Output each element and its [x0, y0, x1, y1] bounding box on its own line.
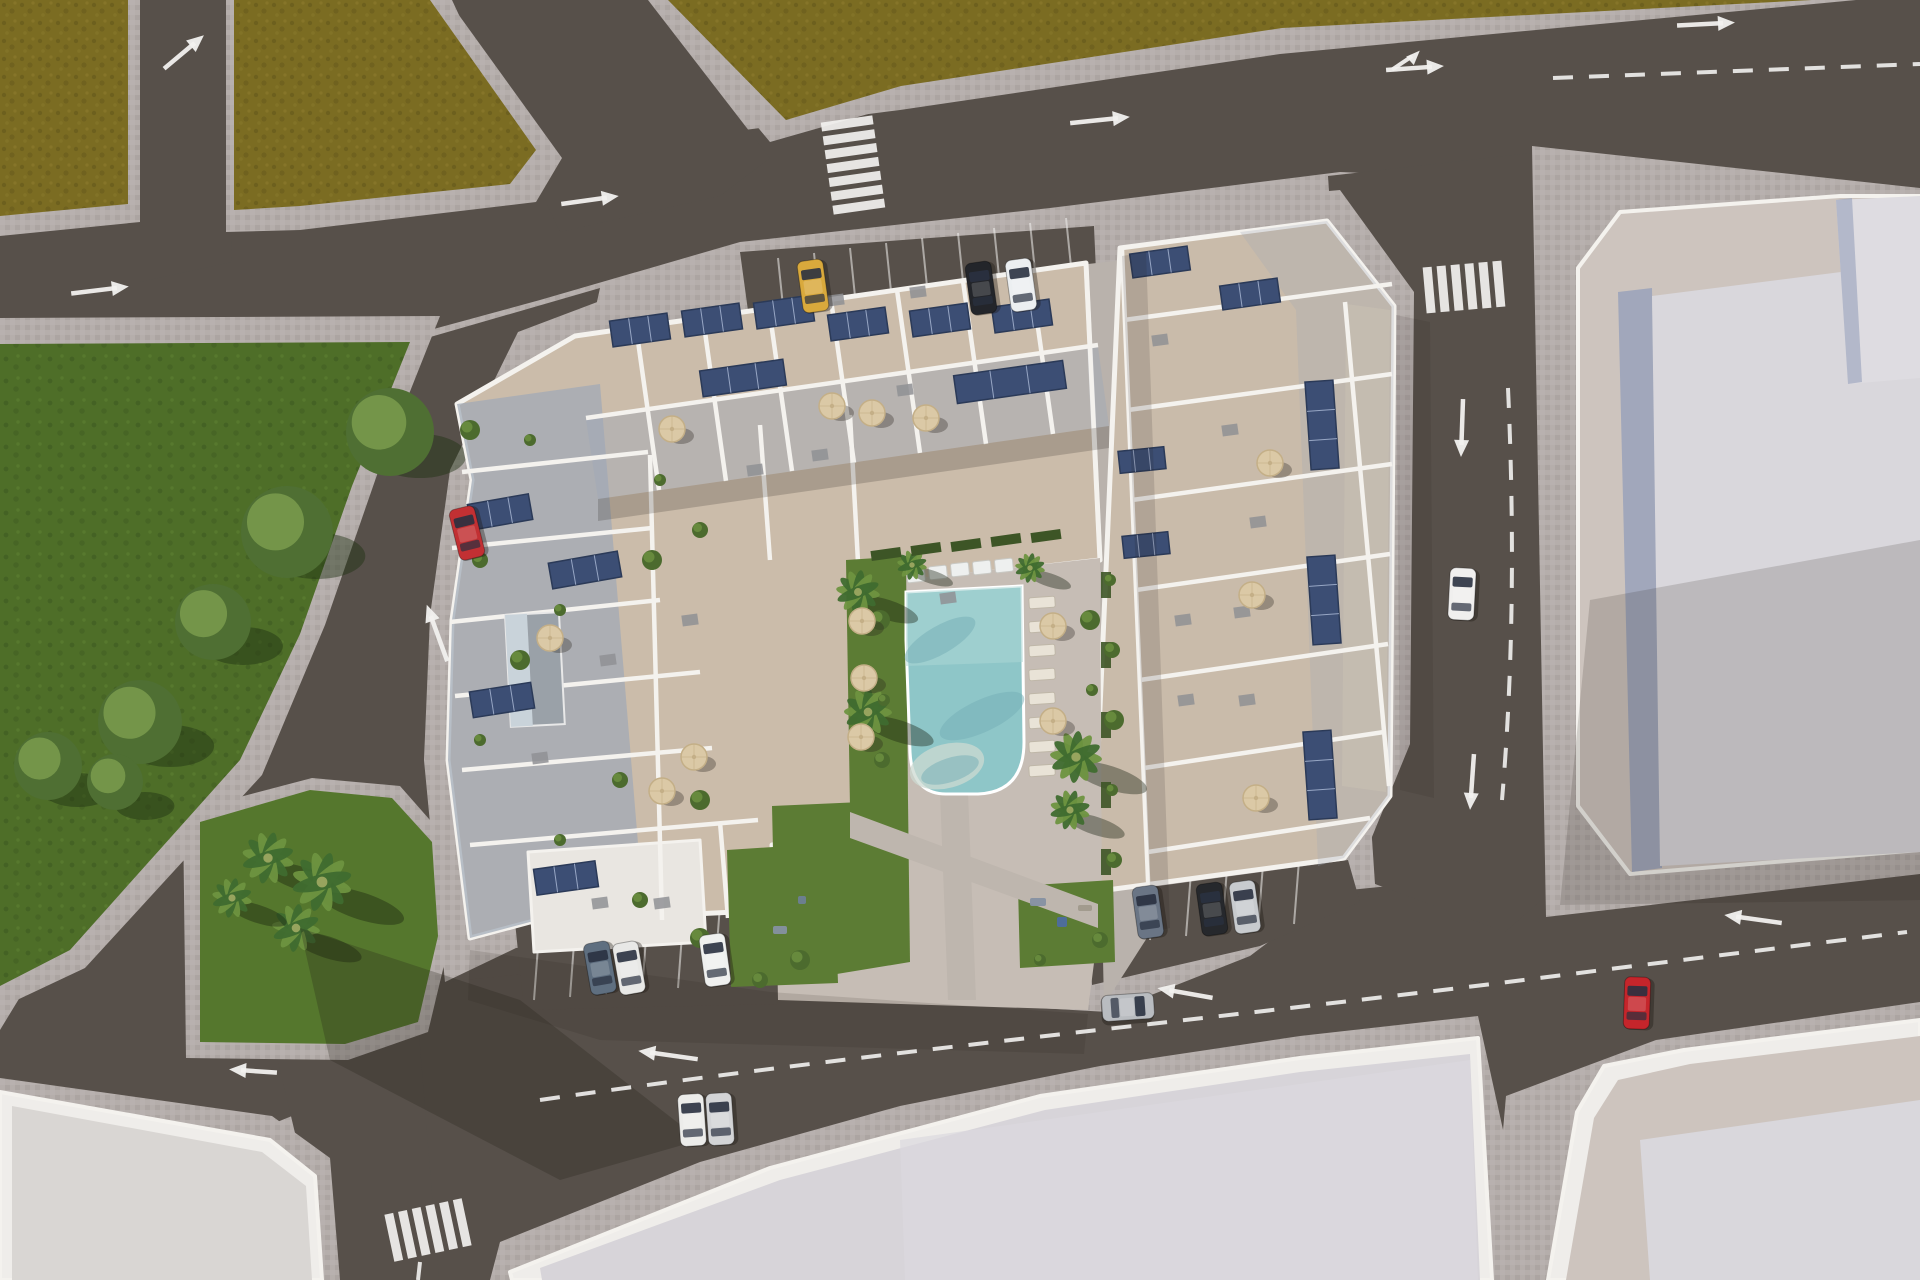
car-red-bottom-road — [1623, 977, 1655, 1031]
umbrella-pole — [862, 676, 866, 680]
umbrella-pole — [692, 755, 696, 759]
car-roof-highlight — [683, 1113, 702, 1128]
umbrella-pole — [660, 789, 664, 793]
terrace-furniture — [1174, 613, 1191, 626]
car-windshield — [1452, 576, 1472, 587]
bush-highlight — [633, 893, 642, 902]
lane-dashed-line — [418, 1262, 420, 1280]
car-rear-window — [1626, 1012, 1646, 1021]
bush-highlight — [693, 523, 702, 532]
terrace-furniture — [909, 285, 926, 298]
tree-canopy-highlight — [352, 395, 407, 450]
umbrella-pole — [830, 404, 834, 408]
olive-field-1 — [0, 0, 128, 216]
solar-panel — [1303, 730, 1337, 820]
bush-highlight — [655, 475, 662, 482]
pool-house-roof — [528, 840, 706, 952]
terrace-furniture — [1249, 515, 1266, 528]
terrace-furniture — [1238, 693, 1255, 706]
terrace-furniture — [599, 653, 616, 666]
car-rear-window — [683, 1128, 704, 1137]
playground-equipment — [798, 896, 806, 904]
car-roof-highlight — [1011, 278, 1031, 294]
car-roof-highlight — [1202, 902, 1222, 918]
tree-canopy-highlight — [247, 493, 304, 550]
umbrella-pole — [860, 619, 864, 623]
playground-equipment — [773, 926, 787, 934]
bush-highlight — [792, 952, 803, 963]
arrow-shaft — [1471, 754, 1474, 798]
scene-svg — [0, 0, 1920, 1280]
bush-highlight — [1093, 933, 1102, 942]
pool-daybed — [994, 558, 1013, 573]
car-roof-highlight — [971, 281, 991, 297]
umbrella-pole — [1268, 461, 1272, 465]
bush-highlight — [875, 753, 884, 762]
solar-panel-array — [1305, 380, 1339, 470]
pool-daybed — [950, 562, 969, 577]
arrow-shaft — [1461, 399, 1463, 445]
bush-highlight — [1087, 685, 1094, 692]
umbrella-pole — [1254, 796, 1258, 800]
car-windshield — [709, 1101, 730, 1112]
umbrella-pole — [924, 416, 928, 420]
sun-lounger — [1029, 596, 1056, 609]
terrace-furniture — [939, 591, 956, 604]
car-windshield — [1627, 986, 1647, 997]
playground-equipment — [1030, 898, 1046, 906]
palm-crown — [317, 877, 328, 888]
shadow-right-road — [1396, 315, 1434, 798]
bush-highlight — [1107, 853, 1116, 862]
bush-highlight — [1105, 575, 1112, 582]
bush-highlight — [879, 695, 886, 702]
terrace-furniture — [681, 613, 698, 626]
terrace-furniture — [1177, 693, 1194, 706]
car-roof-highlight — [1235, 900, 1255, 916]
umbrella-pole — [1250, 593, 1254, 597]
bush-highlight — [462, 422, 473, 433]
terrace-furniture — [531, 751, 548, 764]
bush-highlight — [1106, 712, 1117, 723]
palm-crown — [909, 562, 914, 567]
car-roof-highlight — [1453, 588, 1472, 603]
playground-equipment — [1057, 917, 1067, 927]
tree-canopy-highlight — [91, 758, 126, 793]
sun-lounger — [1029, 764, 1056, 777]
car-rear-window — [1110, 998, 1119, 1019]
tree-canopy-highlight — [18, 737, 60, 779]
sun-lounger — [1029, 692, 1056, 705]
car-roof-highlight — [1119, 998, 1134, 1017]
solar-panel — [1307, 555, 1341, 645]
terrace-furniture — [811, 448, 828, 461]
terrace-furniture — [591, 896, 608, 909]
sun-lounger — [1029, 668, 1056, 681]
car-windshield — [1134, 996, 1145, 1017]
terrace-furniture — [1221, 423, 1238, 436]
car-roof-highlight — [711, 1112, 730, 1127]
terrace-furniture — [1151, 333, 1168, 346]
bush-highlight — [1082, 612, 1093, 623]
car-roof-highlight — [1138, 905, 1158, 921]
arrow-shaft — [1677, 23, 1723, 25]
solar-panel-array — [1303, 730, 1337, 820]
sun-lounger — [1029, 740, 1056, 753]
car-rear-window — [1451, 602, 1471, 611]
car-silver-bottom-center — [705, 1092, 739, 1147]
palm-crown — [864, 708, 873, 717]
umbrella-pole — [870, 411, 874, 415]
bush-highlight — [1105, 643, 1114, 652]
tree-canopy-highlight — [103, 687, 155, 739]
playground-lawn-west — [727, 843, 838, 987]
bush-highlight — [512, 652, 523, 663]
bush-highlight — [525, 435, 532, 442]
solar-panel — [1305, 380, 1339, 470]
palm-crown — [263, 853, 272, 862]
bush-highlight — [555, 605, 562, 612]
tree-canopy-highlight — [180, 590, 227, 637]
palm-crown — [1071, 752, 1080, 761]
bush-highlight — [555, 835, 562, 842]
car-silver-bottom-road — [1100, 992, 1155, 1026]
road-vertical-topleft — [140, 0, 232, 282]
car-roof-highlight — [803, 279, 823, 295]
terrace-furniture — [653, 896, 670, 909]
umbrella-pole — [1051, 719, 1055, 723]
car-roof-highlight — [1628, 997, 1646, 1012]
bush-highlight — [1035, 955, 1042, 962]
umbrella-pole — [1051, 624, 1055, 628]
bush-highlight — [1107, 785, 1114, 792]
car-white-right-road — [1448, 567, 1481, 621]
palm-crown — [1066, 806, 1073, 813]
umbrella-pole — [859, 735, 863, 739]
terrace-furniture — [896, 383, 913, 396]
aerial-render-stage — [0, 0, 1920, 1280]
terrace-furniture — [746, 463, 763, 476]
bush-highlight — [753, 973, 762, 982]
sun-lounger — [1029, 644, 1056, 657]
arrow-shaft — [241, 1070, 277, 1073]
palm-crown — [1027, 565, 1032, 570]
bush-highlight — [613, 773, 622, 782]
car-windshield — [681, 1102, 702, 1113]
palm-crown — [228, 894, 235, 901]
playground-equipment — [1078, 905, 1092, 911]
palm-crown — [854, 588, 862, 596]
umbrella-pole — [670, 427, 674, 431]
bush-highlight — [475, 735, 482, 742]
bush-highlight — [692, 792, 703, 803]
car-roof-highlight — [705, 953, 725, 969]
umbrella-pole — [548, 636, 552, 640]
solar-panel-array — [1307, 555, 1341, 645]
bush-highlight — [644, 552, 655, 563]
pool-daybed — [972, 560, 991, 575]
palm-crown — [292, 924, 301, 933]
car-rear-window — [711, 1127, 732, 1136]
